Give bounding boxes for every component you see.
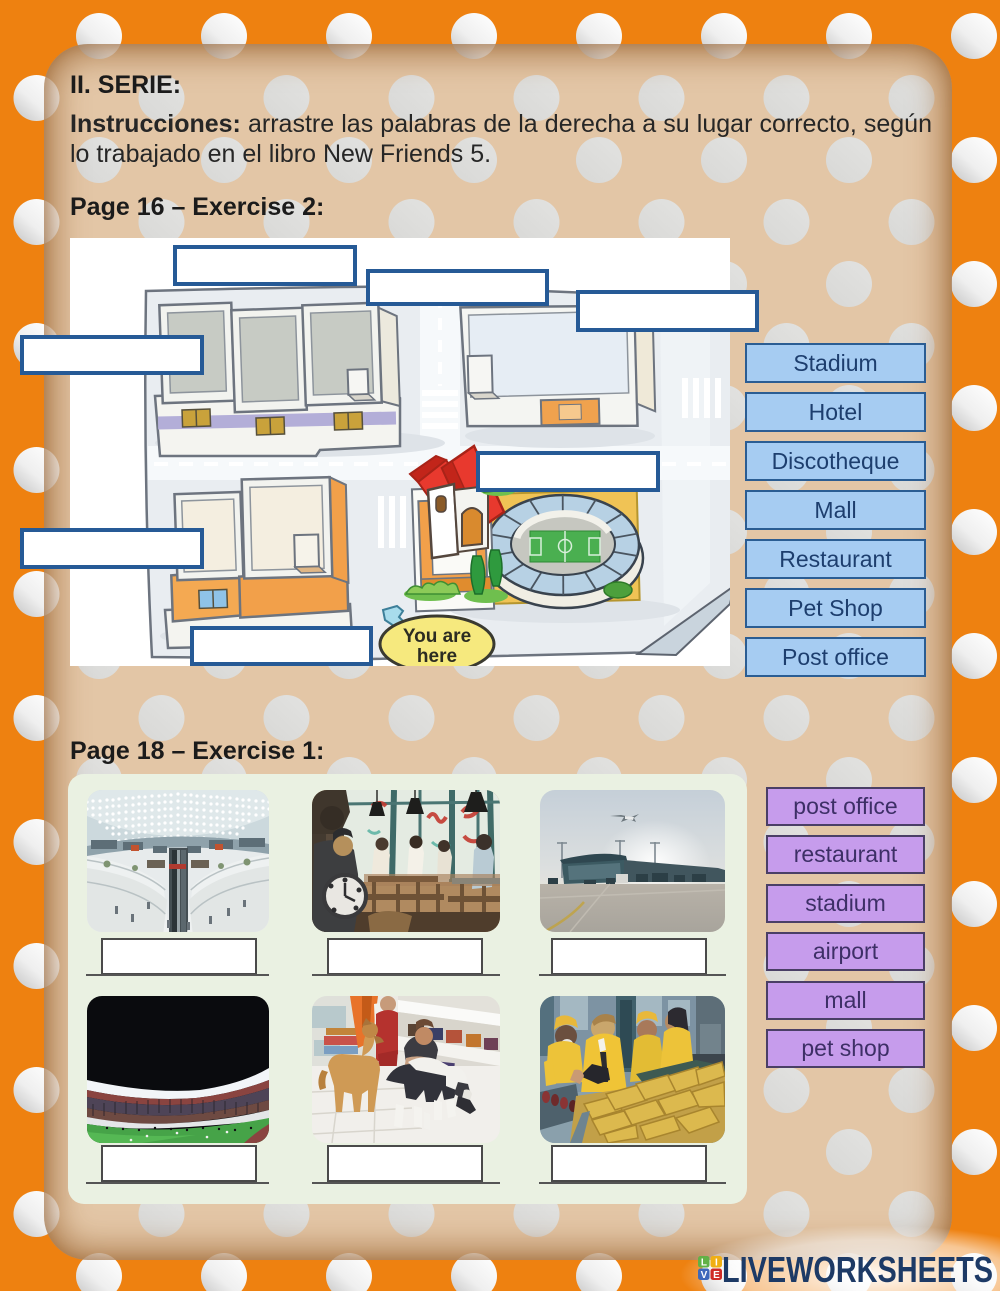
- svg-text:I: I: [715, 1257, 718, 1268]
- svg-text:L: L: [701, 1257, 707, 1268]
- svg-text:LIVEWORKSHEETS: LIVEWORKSHEETS: [722, 1249, 993, 1290]
- svg-text:V: V: [701, 1270, 708, 1281]
- svg-text:E: E: [713, 1270, 720, 1281]
- svg-text:here: here: [417, 646, 457, 666]
- svg-text:You are: You are: [403, 626, 471, 647]
